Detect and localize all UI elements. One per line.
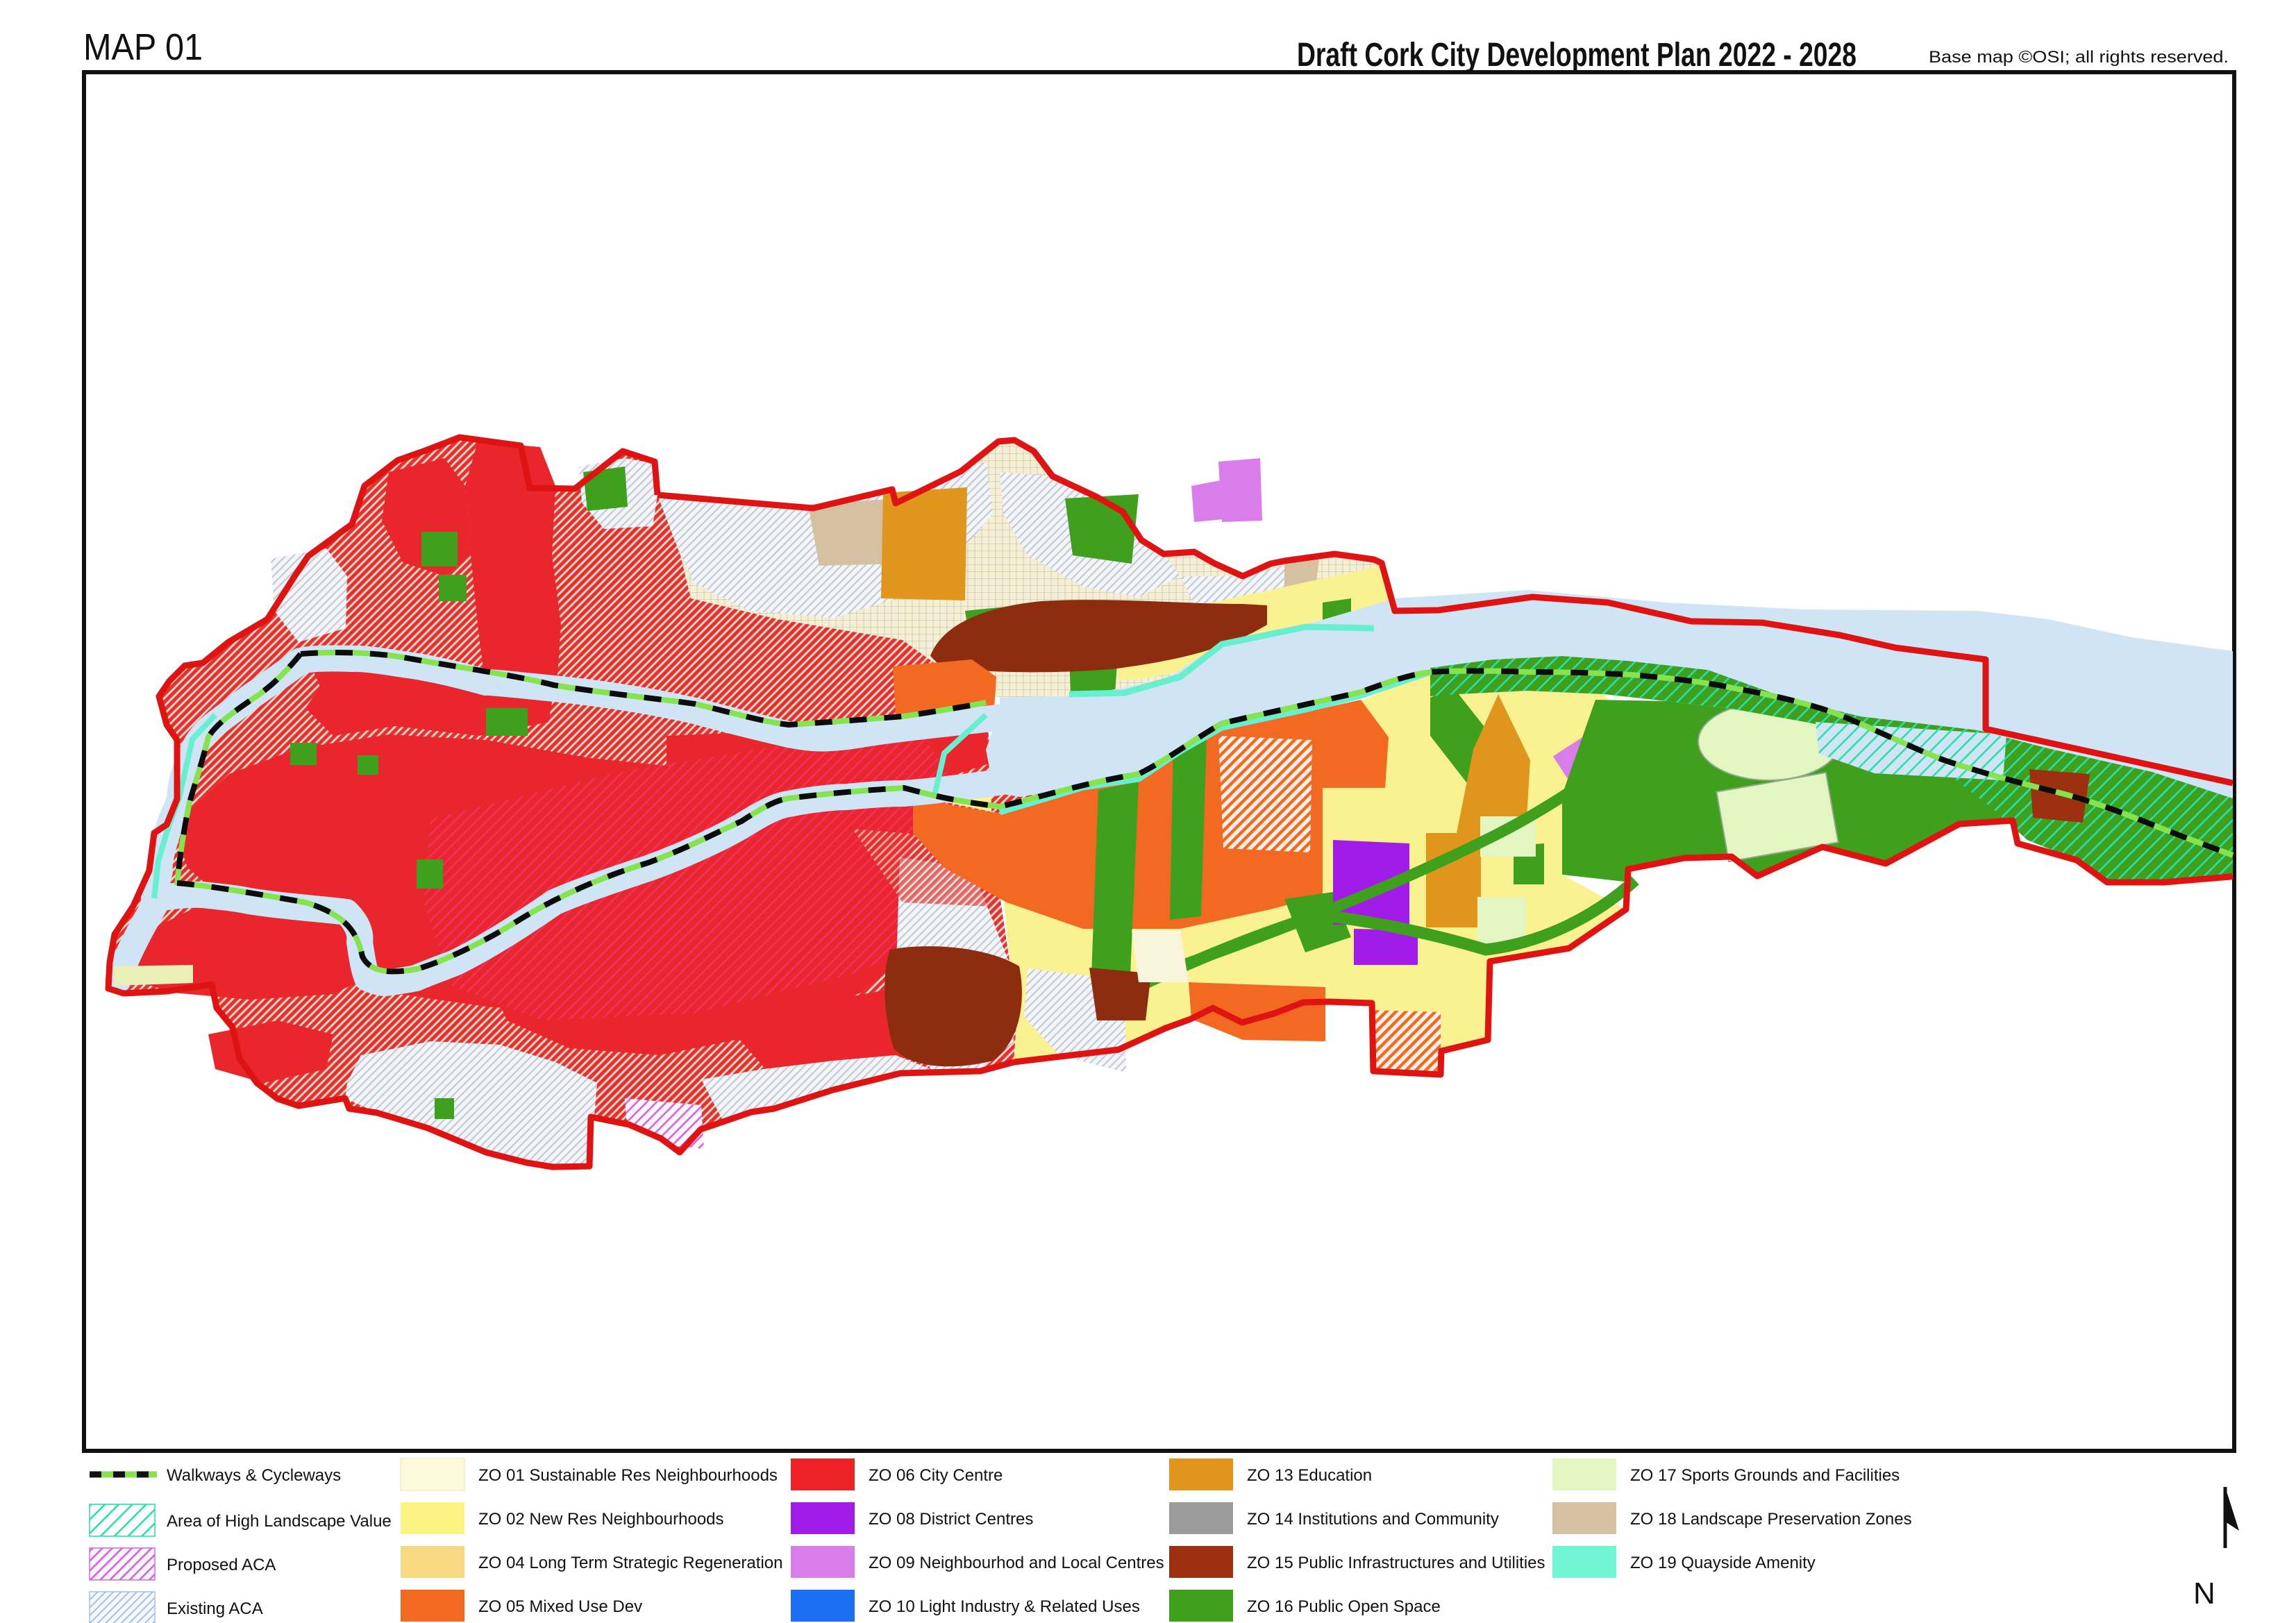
svg-text:ZO 14 Institutions and Communi: ZO 14 Institutions and Community — [1247, 1510, 1499, 1529]
svg-text:Proposed ACA: Proposed ACA — [167, 1556, 276, 1574]
svg-text:ZO 02 New Res Neighbourhoods: ZO 02 New Res Neighbourhoods — [478, 1510, 724, 1529]
svg-text:ZO 08 District Centres: ZO 08 District Centres — [869, 1510, 1033, 1529]
svg-text:ZO 19 Quayside Amenity: ZO 19 Quayside Amenity — [1630, 1554, 1816, 1572]
svg-text:ZO 17 Sports Grounds and Facil: ZO 17 Sports Grounds and Facilities — [1630, 1466, 1900, 1485]
svg-text:ZO 04 Long Term Strategic Rege: ZO 04 Long Term Strategic Regeneration — [478, 1554, 782, 1572]
svg-text:ZO 09 Neighbourhod and Local C: ZO 09 Neighbourhod and Local Centres — [869, 1554, 1164, 1572]
svg-text:N: N — [2193, 1576, 2215, 1611]
svg-text:ZO 05 Mixed Use Dev: ZO 05 Mixed Use Dev — [478, 1597, 642, 1616]
svg-text:ZO 15 Public Infrastructures a: ZO 15 Public Infrastructures and Utiliti… — [1247, 1554, 1545, 1572]
svg-text:Draft Cork City Development Pl: Draft Cork City Development Plan 2022 - … — [1297, 37, 1857, 74]
svg-text:Walkways & Cycleways: Walkways & Cycleways — [167, 1466, 341, 1485]
svg-text:ZO 16 Public Open Space: ZO 16 Public Open Space — [1247, 1597, 1441, 1616]
svg-text:MAP 01: MAP 01 — [83, 26, 203, 68]
svg-text:ZO 01 Sustainable Res Neighbou: ZO 01 Sustainable Res Neighbourhoods — [478, 1466, 778, 1485]
svg-text:ZO 13 Education: ZO 13 Education — [1247, 1466, 1372, 1485]
svg-text:ZO 18 Landscape Preservation Z: ZO 18 Landscape Preservation Zones — [1630, 1510, 1912, 1529]
svg-text:Existing ACA: Existing ACA — [167, 1599, 263, 1618]
svg-text:Area of High Landscape Value: Area of High Landscape Value — [167, 1512, 392, 1531]
svg-text:Base map ©OSI; all rights rese: Base map ©OSI; all rights reserved. — [1929, 48, 2229, 67]
svg-text:ZO 10 Light Industry & Related: ZO 10 Light Industry & Related Uses — [869, 1597, 1140, 1616]
svg-text:ZO 06 City Centre: ZO 06 City Centre — [869, 1466, 1003, 1485]
